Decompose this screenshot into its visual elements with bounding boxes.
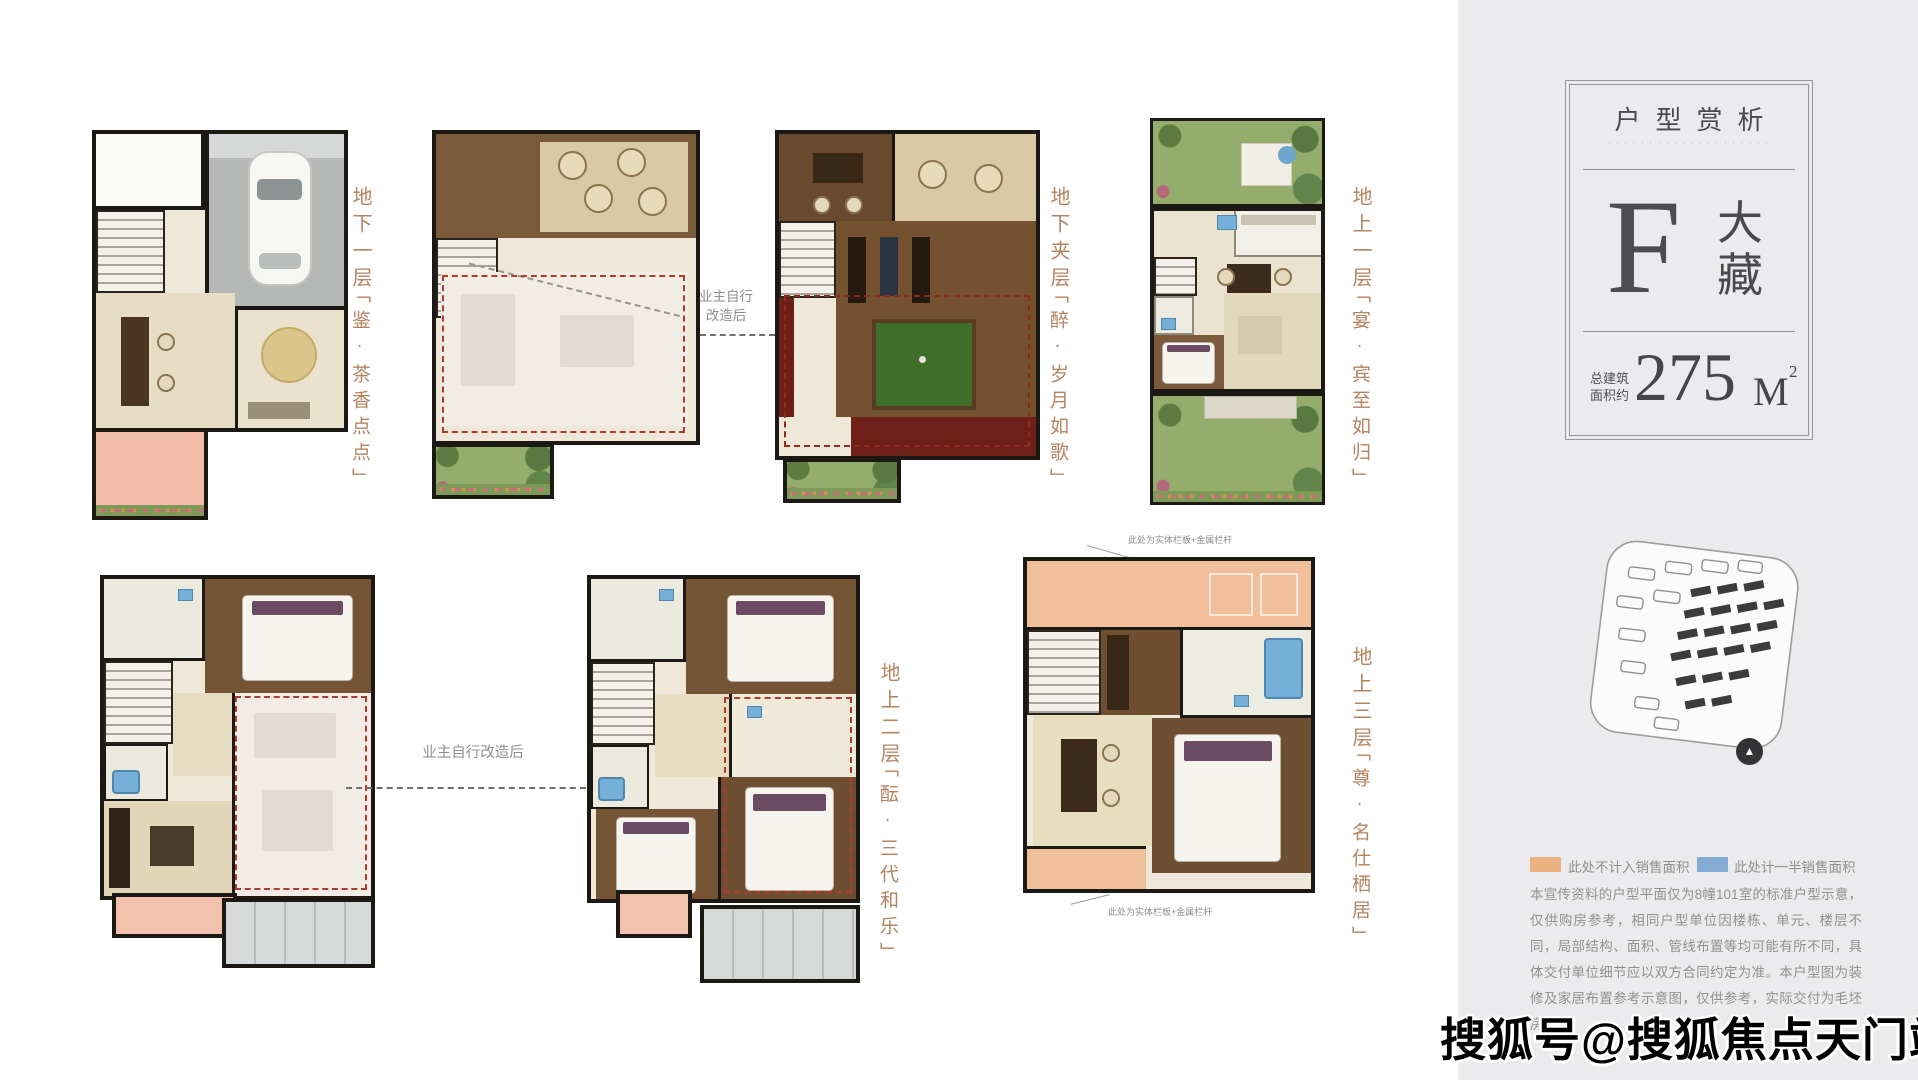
card-table-area bbox=[540, 142, 688, 232]
round-table bbox=[974, 164, 1003, 193]
flower-border bbox=[1153, 491, 1322, 502]
card-divider bbox=[1583, 331, 1795, 332]
ground2-terrace bbox=[112, 893, 237, 938]
bathroom bbox=[591, 579, 686, 662]
bed-pillow bbox=[1184, 741, 1272, 761]
unit-type-name-char1: 大 bbox=[1714, 198, 1766, 250]
bed bbox=[616, 817, 696, 894]
master-bathroom bbox=[1180, 630, 1311, 719]
floorplan-basement-1 bbox=[92, 130, 348, 432]
bathroom bbox=[104, 579, 205, 661]
front-garden bbox=[1150, 118, 1325, 207]
staircase bbox=[1027, 630, 1101, 715]
storage-cabinets bbox=[222, 898, 375, 968]
renovation-note-bottom: 业主自行改造后 bbox=[408, 744, 538, 763]
renovation-outline bbox=[442, 275, 685, 433]
washbasin bbox=[1234, 695, 1249, 707]
staircase bbox=[779, 221, 836, 298]
rear-garden bbox=[1150, 393, 1325, 505]
treadmill bbox=[848, 237, 866, 304]
round-table bbox=[617, 148, 646, 177]
unit-type-letter: F bbox=[1606, 180, 1681, 315]
floorplan-ground-3 bbox=[1023, 557, 1315, 893]
exercise-bike bbox=[880, 237, 898, 296]
terrace-outline bbox=[784, 295, 1030, 447]
bedroom bbox=[1154, 335, 1224, 388]
floorplan-ground-1 bbox=[1150, 118, 1325, 505]
watermark-text: 搜狐号@搜狐焦点天门站 bbox=[1440, 1004, 1918, 1070]
family-room bbox=[436, 134, 696, 238]
terrace-lounger bbox=[1260, 573, 1298, 617]
railing-annotation-bottom: 此处为实体栏板+金属栏杆 bbox=[1108, 905, 1212, 918]
sofa bbox=[248, 402, 310, 418]
renovation-outline bbox=[724, 697, 853, 893]
floorplan-ground-2 bbox=[587, 575, 860, 903]
basement1-terrace bbox=[92, 428, 208, 520]
bed-pillow bbox=[252, 601, 344, 615]
washbasin bbox=[659, 589, 674, 601]
siteplan-diagram bbox=[1568, 535, 1820, 773]
area-label: 总建筑 面积约 bbox=[1590, 370, 1636, 404]
area-label-line2: 面积约 bbox=[1590, 387, 1636, 404]
bathtub bbox=[1264, 638, 1304, 698]
legend-label-orange: 此处不计入销售面积 bbox=[1568, 856, 1690, 876]
ground2-terrace bbox=[616, 890, 692, 938]
living-room bbox=[1224, 293, 1321, 389]
flower-border bbox=[436, 484, 550, 495]
parasol bbox=[1278, 146, 1296, 164]
garden-paving bbox=[1204, 396, 1297, 419]
chair bbox=[1102, 789, 1120, 807]
study-room bbox=[1033, 715, 1152, 846]
car-icon bbox=[248, 151, 311, 286]
renovation-dashed-link-bottom bbox=[346, 787, 586, 789]
unit-type-name-char2: 藏 bbox=[1714, 250, 1766, 302]
legend-swatch-blue bbox=[1697, 857, 1728, 872]
bedroom-north bbox=[205, 579, 371, 693]
floorplan-mezzanine-floor-label: 地下夹层 bbox=[1048, 186, 1068, 294]
bed-pillow bbox=[1167, 345, 1209, 351]
basement1-garden bbox=[432, 443, 554, 499]
railing-annotation-top: 此处为实体栏板+金属栏杆 bbox=[1128, 533, 1232, 546]
tea-table bbox=[121, 317, 149, 406]
round-table bbox=[558, 151, 587, 180]
floorplan-ground-2-name-label: 「酝·三代和乐」 bbox=[878, 758, 897, 968]
area-label-line1: 总建筑 bbox=[1590, 370, 1636, 387]
renovation-outline bbox=[235, 696, 367, 890]
round-table bbox=[584, 184, 613, 213]
kitchen-counter bbox=[1241, 215, 1316, 225]
area-superscript: 2 bbox=[1789, 362, 1798, 382]
floorplan-ground-3-floor-label: 地上三层 bbox=[1350, 646, 1370, 754]
card-divider bbox=[1583, 169, 1795, 170]
floorplan-basement-1-floor-label: 地下一层 bbox=[350, 186, 370, 294]
chair bbox=[157, 374, 175, 392]
lounge-area bbox=[892, 134, 1036, 221]
bar-stool bbox=[845, 196, 863, 214]
staircase bbox=[104, 661, 173, 743]
car-windshield bbox=[257, 179, 302, 200]
legend-label-blue: 此处计一半销售面积 bbox=[1734, 856, 1856, 876]
unit-type-name: 大 藏 bbox=[1714, 198, 1766, 302]
poster-canvas: 地下一层 「鉴·茶香点点」 业主自行 改造后 bbox=[0, 0, 1918, 1080]
lounge-room bbox=[235, 310, 344, 428]
unit-type-title: 户型赏析 bbox=[1565, 100, 1813, 137]
media-room bbox=[104, 801, 232, 896]
compass-north-icon: ▲ bbox=[1736, 738, 1763, 765]
renovation-note-top: 业主自行 改造后 bbox=[686, 287, 766, 325]
bar-stool bbox=[813, 196, 831, 214]
bathtub bbox=[112, 770, 140, 793]
entry-mat bbox=[1217, 215, 1237, 230]
mezzanine-garden bbox=[783, 458, 901, 503]
round-table bbox=[918, 160, 947, 189]
floorplan-basement-1-renovated bbox=[432, 130, 700, 445]
staircase bbox=[591, 662, 655, 745]
renovation-dashed-link-top bbox=[700, 334, 775, 336]
hallway bbox=[173, 693, 237, 775]
wardrobe-unit bbox=[1107, 635, 1129, 710]
chair bbox=[1274, 268, 1292, 286]
garage-room bbox=[205, 134, 344, 310]
storage-cabinets bbox=[700, 905, 860, 983]
staircase bbox=[1154, 257, 1197, 296]
floorplan-ground-2-floor-label: 地上二层 bbox=[878, 662, 898, 770]
floorplan-basement-mezzanine bbox=[775, 130, 1040, 460]
bed bbox=[242, 595, 353, 681]
area-value: 275 bbox=[1634, 343, 1736, 411]
gym-equipment bbox=[912, 237, 930, 304]
kitchen bbox=[1234, 211, 1321, 257]
washbasin bbox=[1161, 318, 1176, 330]
bedroom-north bbox=[686, 579, 856, 694]
round-table bbox=[638, 187, 667, 216]
chair bbox=[157, 333, 175, 351]
roof-terrace bbox=[1027, 561, 1311, 630]
ground1-house bbox=[1150, 207, 1325, 393]
washbasin bbox=[178, 589, 193, 601]
bathtub bbox=[598, 777, 625, 801]
bar-counter bbox=[813, 153, 863, 183]
corridor bbox=[1101, 630, 1181, 715]
floorplan-ground-1-floor-label: 地上一层 bbox=[1350, 186, 1370, 294]
desk bbox=[1061, 739, 1097, 812]
sofa-set bbox=[1238, 316, 1283, 354]
storage-room bbox=[96, 134, 205, 210]
area-unit: M bbox=[1753, 372, 1789, 412]
bed-pillow bbox=[736, 601, 824, 615]
bed-pillow bbox=[623, 822, 689, 834]
bar-room bbox=[779, 134, 892, 221]
renovation-note-top-line2: 改造后 bbox=[686, 306, 766, 325]
bedroom-southwest bbox=[596, 809, 718, 899]
floorplan-ground-2-renovated bbox=[100, 575, 375, 900]
terrace-lounger bbox=[1209, 573, 1253, 617]
unit-type-subtitle: · · · · · · · · · · · · · · · · · · · · bbox=[1565, 140, 1813, 147]
bed bbox=[727, 595, 834, 682]
bathroom-small bbox=[104, 744, 168, 801]
south-terrace bbox=[1027, 846, 1146, 889]
renovation-note-top-line1: 业主自行 bbox=[686, 287, 766, 306]
car-rear-window bbox=[259, 253, 302, 269]
bed bbox=[1174, 734, 1281, 862]
round-rug bbox=[261, 327, 317, 383]
bed bbox=[1162, 342, 1214, 385]
master-bedroom bbox=[1152, 718, 1311, 872]
media-table bbox=[150, 826, 194, 866]
tv-wall bbox=[109, 808, 130, 888]
floorplan-ground-3-name-label: 「尊·名仕栖居」 bbox=[1350, 742, 1369, 952]
hallway bbox=[655, 694, 729, 777]
staircase bbox=[96, 210, 165, 292]
chair bbox=[1102, 744, 1120, 762]
tea-room bbox=[96, 293, 235, 428]
floorplan-basement-1-name-label: 「鉴·茶香点点」 bbox=[350, 284, 369, 494]
floorplan-mezzanine-name-label: 「醉·岁月如歌」 bbox=[1048, 284, 1067, 494]
annotation-leader-line bbox=[1070, 894, 1109, 905]
flower-border bbox=[787, 488, 897, 499]
floorplan-ground-1-name-label: 「宴·宾至如归」 bbox=[1350, 284, 1369, 494]
legend-swatch-orange bbox=[1530, 857, 1561, 872]
flower-border bbox=[96, 505, 204, 516]
bathroom bbox=[1154, 296, 1194, 335]
bathroom-small bbox=[591, 745, 649, 809]
